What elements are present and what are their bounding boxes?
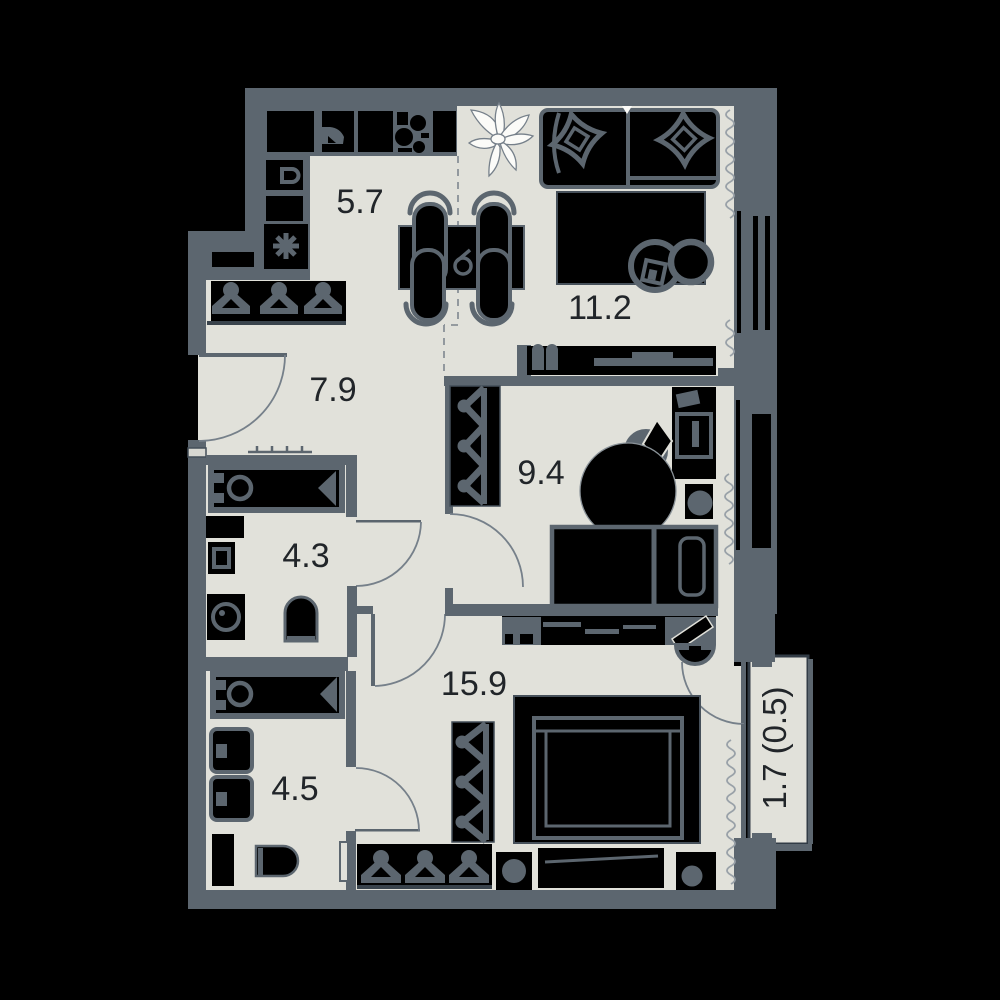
svg-text:7.9: 7.9 [309,371,356,409]
svg-text:9.4: 9.4 [517,454,564,492]
svg-text:1.7 (0.5): 1.7 (0.5) [756,687,793,810]
svg-text:4.3: 4.3 [282,537,329,575]
svg-text:4.5: 4.5 [271,770,318,808]
svg-text:15.9: 15.9 [441,665,507,703]
svg-text:11.2: 11.2 [568,289,632,327]
svg-text:5.7: 5.7 [336,183,383,221]
